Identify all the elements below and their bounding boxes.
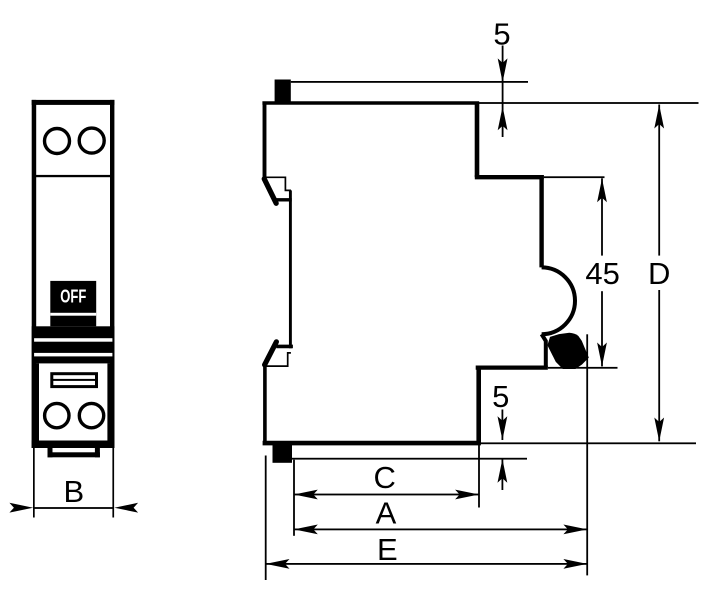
svg-text:5: 5 (492, 379, 509, 414)
svg-text:OFF: OFF (60, 286, 86, 306)
svg-text:C: C (374, 460, 396, 495)
svg-text:D: D (648, 256, 670, 291)
svg-text:B: B (63, 474, 84, 509)
svg-text:A: A (376, 496, 397, 531)
svg-text:5: 5 (493, 16, 510, 51)
svg-text:E: E (377, 532, 398, 567)
svg-text:45: 45 (585, 256, 619, 291)
